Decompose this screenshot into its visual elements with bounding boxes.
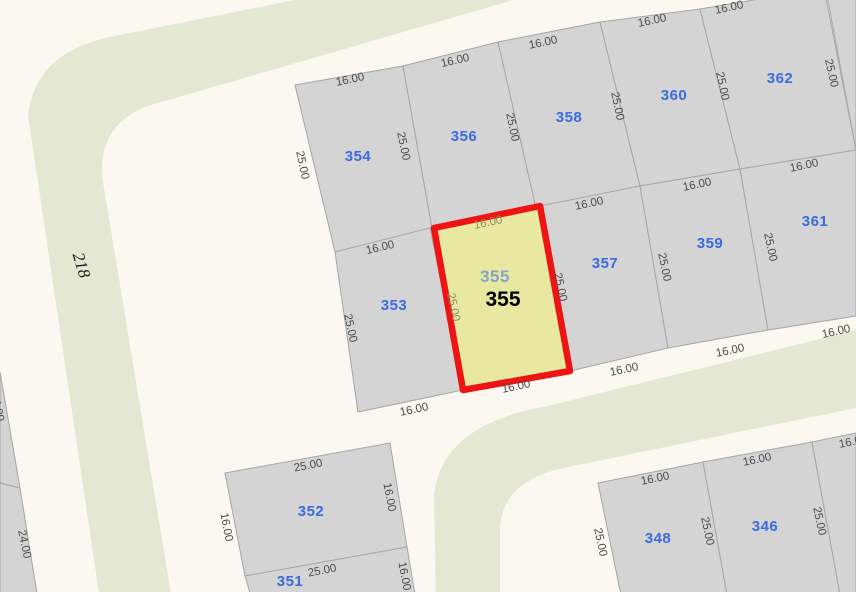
parcel-number-348: 348: [645, 530, 672, 547]
parcel-number-357: 357: [592, 255, 619, 272]
selected-parcel-number-sub: 355: [480, 267, 510, 286]
parcel-map-canvas[interactable]: 16.0016.0016.0016.0016.0025.0025.0025.00…: [0, 0, 856, 592]
parcel-number-352: 352: [298, 503, 325, 520]
parcel-number-360: 360: [661, 87, 688, 104]
parcel-number-353: 353: [381, 297, 408, 314]
parcel-number-361: 361: [802, 213, 829, 230]
parcel-number-359: 359: [697, 235, 724, 252]
parcel-number-351: 351: [277, 573, 304, 590]
parcel-number-346: 346: [752, 518, 779, 535]
parcel-number-362: 362: [767, 70, 794, 87]
parcel-number-358: 358: [556, 109, 583, 126]
parcel-map-svg[interactable]: 16.0016.0016.0016.0016.0025.0025.0025.00…: [0, 0, 856, 592]
parcel-number-354: 354: [345, 148, 372, 165]
selected-parcel-number-main: 355: [485, 288, 520, 311]
parcel-number-356: 356: [451, 128, 478, 145]
